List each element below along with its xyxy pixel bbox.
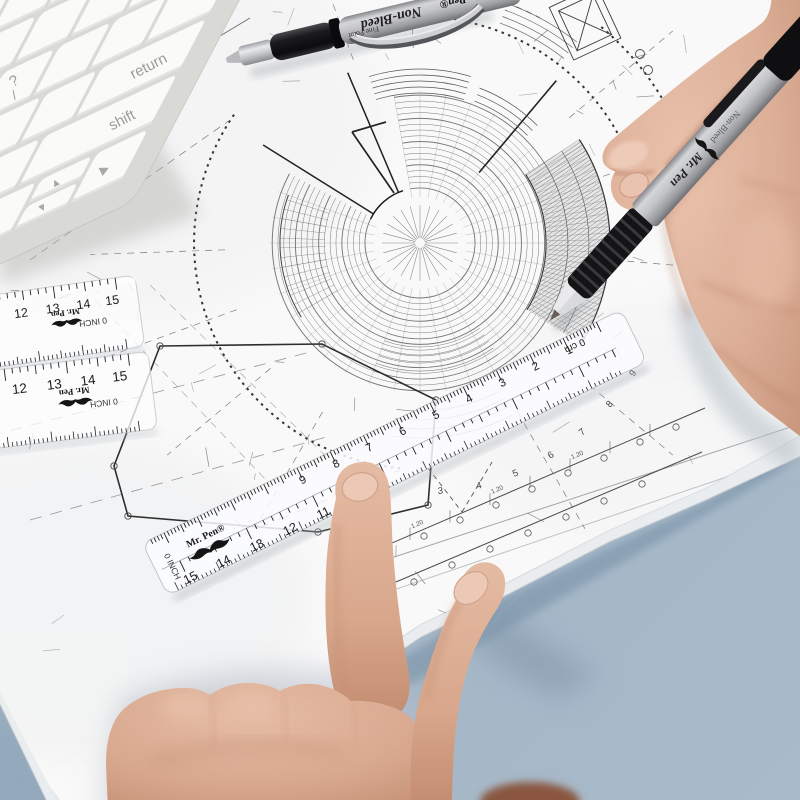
svg-text:15: 15 (104, 293, 120, 309)
svg-text:3: 3 (437, 486, 443, 497)
svg-text:12: 12 (11, 380, 28, 397)
svg-text:12: 12 (13, 305, 29, 321)
svg-text:15: 15 (111, 368, 128, 385)
